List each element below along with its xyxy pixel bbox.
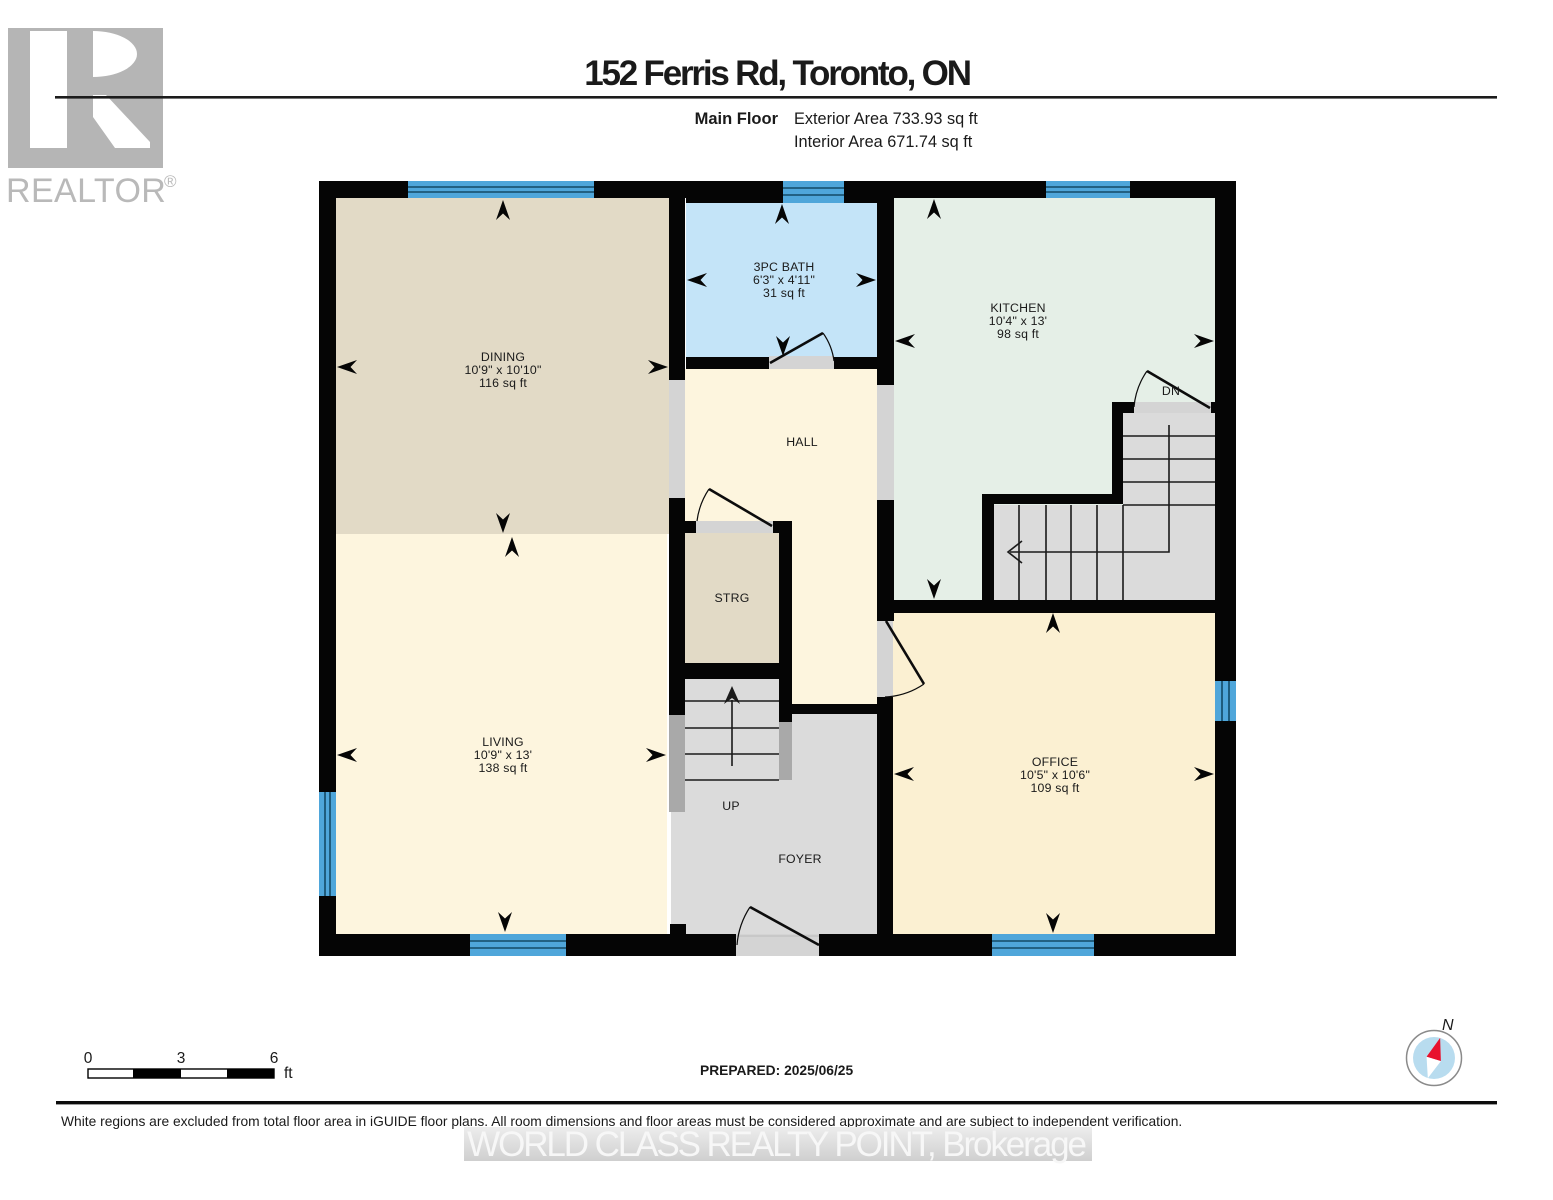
- svg-text:®: ®: [164, 172, 177, 191]
- svg-text:REALTOR: REALTOR: [6, 172, 166, 210]
- svg-text:0: 0: [84, 1050, 93, 1067]
- svg-text:UP: UP: [722, 799, 739, 813]
- svg-text:FOYER: FOYER: [778, 852, 821, 866]
- svg-text:HALL: HALL: [786, 435, 818, 449]
- svg-text:PREPARED: 2025/06/25: PREPARED: 2025/06/25: [700, 1063, 853, 1078]
- svg-text:3PC BATH: 3PC BATH: [754, 260, 815, 274]
- svg-text:DINING: DINING: [481, 350, 525, 364]
- svg-text:N: N: [1442, 1017, 1454, 1034]
- svg-text:ft: ft: [284, 1065, 293, 1082]
- svg-text:KITCHEN: KITCHEN: [990, 301, 1045, 315]
- svg-text:LIVING: LIVING: [482, 735, 524, 749]
- svg-text:10'5" x 10'6": 10'5" x 10'6": [1020, 768, 1090, 782]
- svg-text:Main Floor: Main Floor: [695, 110, 779, 128]
- svg-text:31 sq ft: 31 sq ft: [763, 286, 805, 300]
- svg-text:116 sq ft: 116 sq ft: [479, 376, 527, 390]
- svg-text:6'3" x 4'11": 6'3" x 4'11": [753, 273, 815, 287]
- svg-text:152 Ferris Rd, Toronto, ON: 152 Ferris Rd, Toronto, ON: [584, 54, 970, 93]
- svg-text:109 sq ft: 109 sq ft: [1031, 781, 1080, 795]
- svg-text:Exterior Area 733.93 sq ft: Exterior Area 733.93 sq ft: [794, 110, 978, 128]
- svg-text:Interior Area 671.74 sq ft: Interior Area 671.74 sq ft: [794, 133, 973, 151]
- svg-text:10'9" x 10'10": 10'9" x 10'10": [464, 363, 541, 377]
- svg-text:6: 6: [270, 1050, 279, 1067]
- svg-text:WORLD CLASS REALTY POINT, Brok: WORLD CLASS REALTY POINT, Brokerage: [467, 1125, 1085, 1164]
- svg-text:OFFICE: OFFICE: [1032, 755, 1078, 769]
- svg-text:98 sq ft: 98 sq ft: [997, 327, 1039, 341]
- svg-text:10'4" x 13': 10'4" x 13': [989, 314, 1047, 328]
- svg-text:3: 3: [177, 1050, 186, 1067]
- svg-text:138 sq ft: 138 sq ft: [479, 761, 528, 775]
- svg-text:DN: DN: [1162, 384, 1180, 398]
- svg-text:10'9" x 13': 10'9" x 13': [474, 748, 532, 762]
- svg-text:STRG: STRG: [715, 591, 750, 605]
